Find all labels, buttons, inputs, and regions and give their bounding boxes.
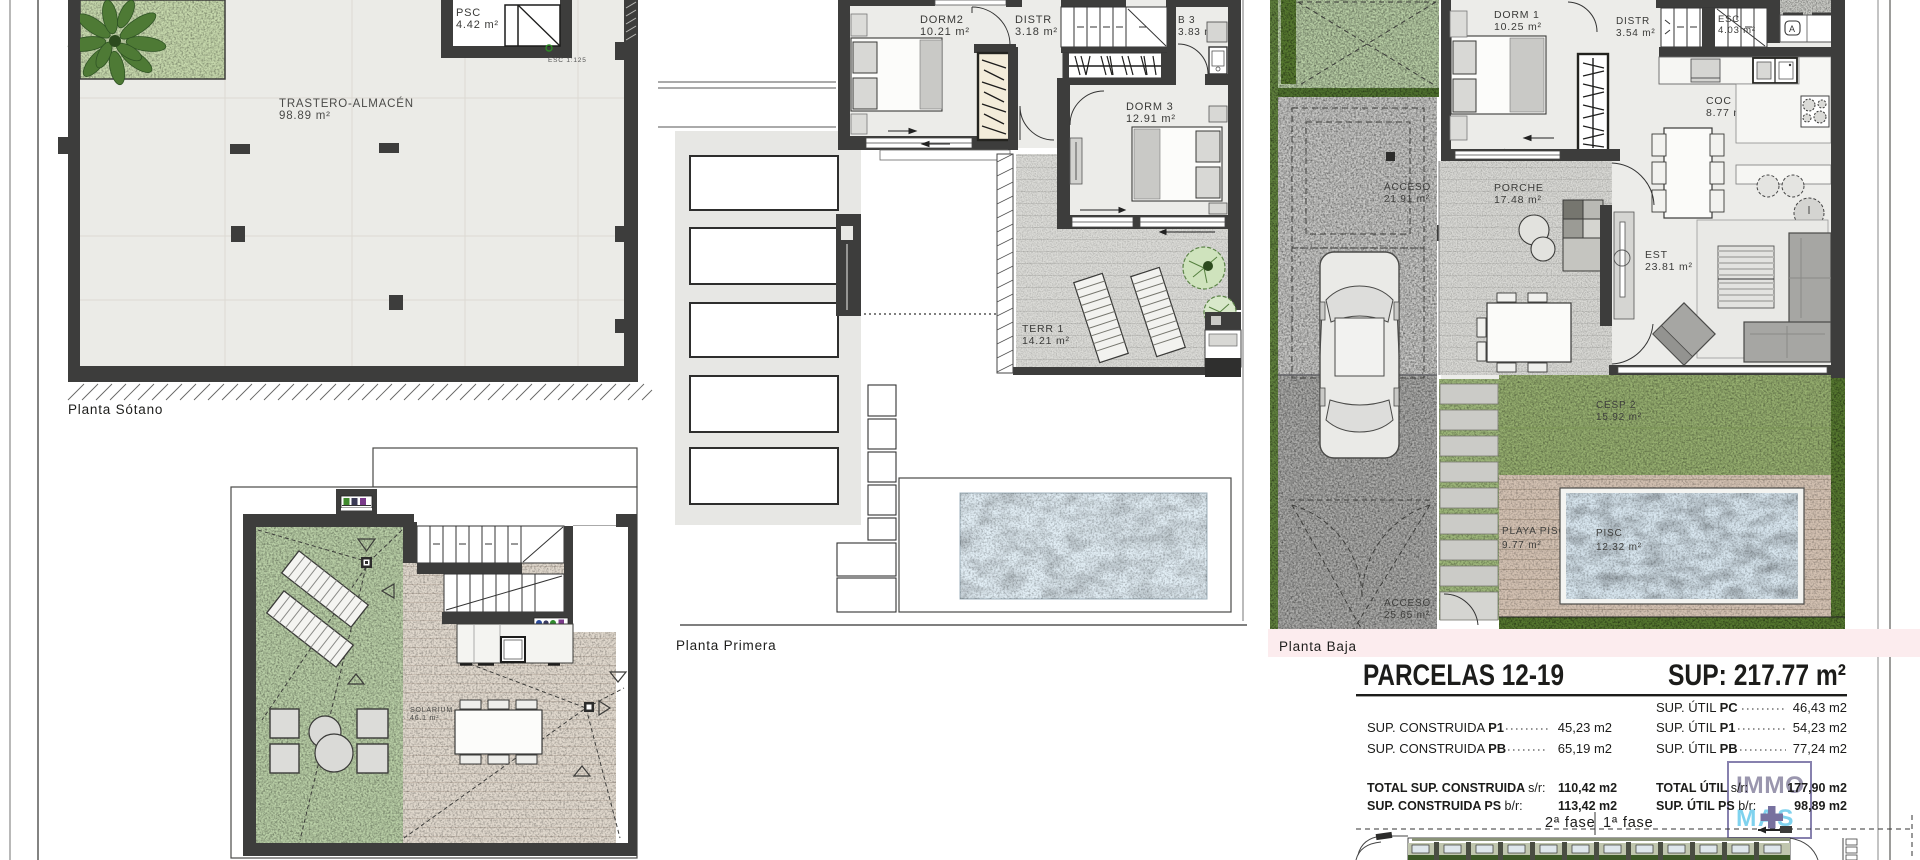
svg-text:ESC: ESC: [1718, 14, 1740, 25]
svg-text:PISC: PISC: [1596, 528, 1623, 539]
svg-text:17.48 m²: 17.48 m²: [1494, 194, 1542, 206]
svg-text:10.25 m²: 10.25 m²: [1494, 21, 1542, 33]
svg-text:113,42 m2: 113,42 m2: [1558, 799, 1617, 813]
svg-text:15.92 m²: 15.92 m²: [1596, 412, 1642, 423]
svg-text:12.32 m²: 12.32 m²: [1596, 542, 1642, 553]
svg-text:TERR 1: TERR 1: [1022, 323, 1064, 335]
svg-text:TOTAL SUP. CONSTRUIDA s/r:: TOTAL SUP. CONSTRUIDA s/r:: [1367, 781, 1546, 795]
svg-text:65,19 m2: 65,19 m2: [1558, 741, 1612, 756]
svg-text:98.89 m²: 98.89 m²: [279, 110, 331, 122]
svg-text:DORM 1: DORM 1: [1494, 9, 1540, 21]
svg-text:TRASTERO-ALMACÉN: TRASTERO-ALMACÉN: [279, 97, 414, 110]
svg-text:DORM2: DORM2: [920, 14, 964, 26]
svg-text:ACCESO: ACCESO: [1384, 182, 1431, 193]
svg-text:TOTAL ÚTIL s/r:: TOTAL ÚTIL s/r:: [1656, 780, 1748, 795]
svg-text:A: A: [1789, 24, 1795, 34]
svg-text:SUP: 217.77 m²: SUP: 217.77 m²: [1668, 659, 1846, 692]
svg-text:ACCESO: ACCESO: [1384, 598, 1431, 609]
svg-text:Planta Primera: Planta Primera: [676, 638, 777, 653]
svg-text:4.03 m²: 4.03 m²: [1718, 25, 1756, 36]
svg-text:PORCHE: PORCHE: [1494, 182, 1544, 194]
svg-text:46,43 m2: 46,43 m2: [1793, 700, 1847, 715]
svg-text:54,23 m2: 54,23 m2: [1793, 720, 1847, 735]
svg-text:B 3: B 3: [1178, 15, 1195, 26]
svg-text:SUP. CONSTRUIDA PB: SUP. CONSTRUIDA PB: [1367, 741, 1506, 756]
svg-text:Planta Sótano: Planta Sótano: [68, 402, 163, 417]
svg-text:46.1 m²: 46.1 m²: [410, 715, 439, 722]
svg-text:10.21 m²: 10.21 m²: [920, 26, 970, 38]
svg-text:12.91 m²: 12.91 m²: [1126, 113, 1176, 125]
svg-text:2ª fase: 2ª fase: [1545, 815, 1595, 831]
svg-text:110,42 m2: 110,42 m2: [1558, 781, 1617, 795]
svg-text:SUP. ÚTIL P1: SUP. ÚTIL P1: [1656, 720, 1735, 735]
svg-text:98,89 m2: 98,89 m2: [1794, 799, 1847, 813]
svg-text:45,23 m2: 45,23 m2: [1558, 720, 1612, 735]
svg-text:9.77 m²: 9.77 m²: [1502, 540, 1542, 551]
svg-text:CESP 2: CESP 2: [1596, 400, 1636, 411]
svg-text:25.65 m²: 25.65 m²: [1384, 610, 1430, 621]
svg-text:SOLARIUM: SOLARIUM: [410, 707, 453, 714]
svg-text:4.42 m²: 4.42 m²: [456, 19, 499, 31]
svg-text:177,90 m2: 177,90 m2: [1787, 781, 1847, 795]
svg-text:3.18 m²: 3.18 m²: [1015, 26, 1058, 38]
svg-text:DISTR: DISTR: [1616, 16, 1650, 27]
svg-text:PSC: PSC: [456, 7, 481, 19]
svg-text:ESC 1:125: ESC 1:125: [548, 57, 587, 64]
svg-text:DORM 3: DORM 3: [1126, 101, 1174, 113]
svg-text:COC: COC: [1706, 95, 1732, 107]
svg-text:SUP. CONSTRUIDA PS b/r:: SUP. CONSTRUIDA PS b/r:: [1367, 799, 1523, 813]
svg-text:3.54 m²: 3.54 m²: [1616, 28, 1656, 39]
svg-text:PARCELAS 12-19: PARCELAS 12-19: [1363, 659, 1564, 692]
svg-text:PLAYA PISC: PLAYA PISC: [1502, 526, 1566, 537]
svg-text:SUP. ÚTIL PB: SUP. ÚTIL PB: [1656, 741, 1738, 756]
svg-text:14.21 m²: 14.21 m²: [1022, 335, 1070, 347]
svg-text:SUP. ÚTIL PS b/r:: SUP. ÚTIL PS b/r:: [1656, 798, 1756, 813]
svg-text:21.91 m²: 21.91 m²: [1384, 194, 1430, 205]
svg-text:SUP. CONSTRUIDA P1: SUP. CONSTRUIDA P1: [1367, 720, 1504, 735]
svg-text:EST: EST: [1645, 249, 1668, 261]
svg-text:23.81 m²: 23.81 m²: [1645, 261, 1693, 273]
svg-text:DISTR: DISTR: [1015, 14, 1052, 26]
svg-text:Planta Baja: Planta Baja: [1279, 639, 1357, 654]
svg-text:77,24 m2: 77,24 m2: [1793, 741, 1847, 756]
svg-text:SUP. ÚTIL PC: SUP. ÚTIL PC: [1656, 700, 1738, 715]
